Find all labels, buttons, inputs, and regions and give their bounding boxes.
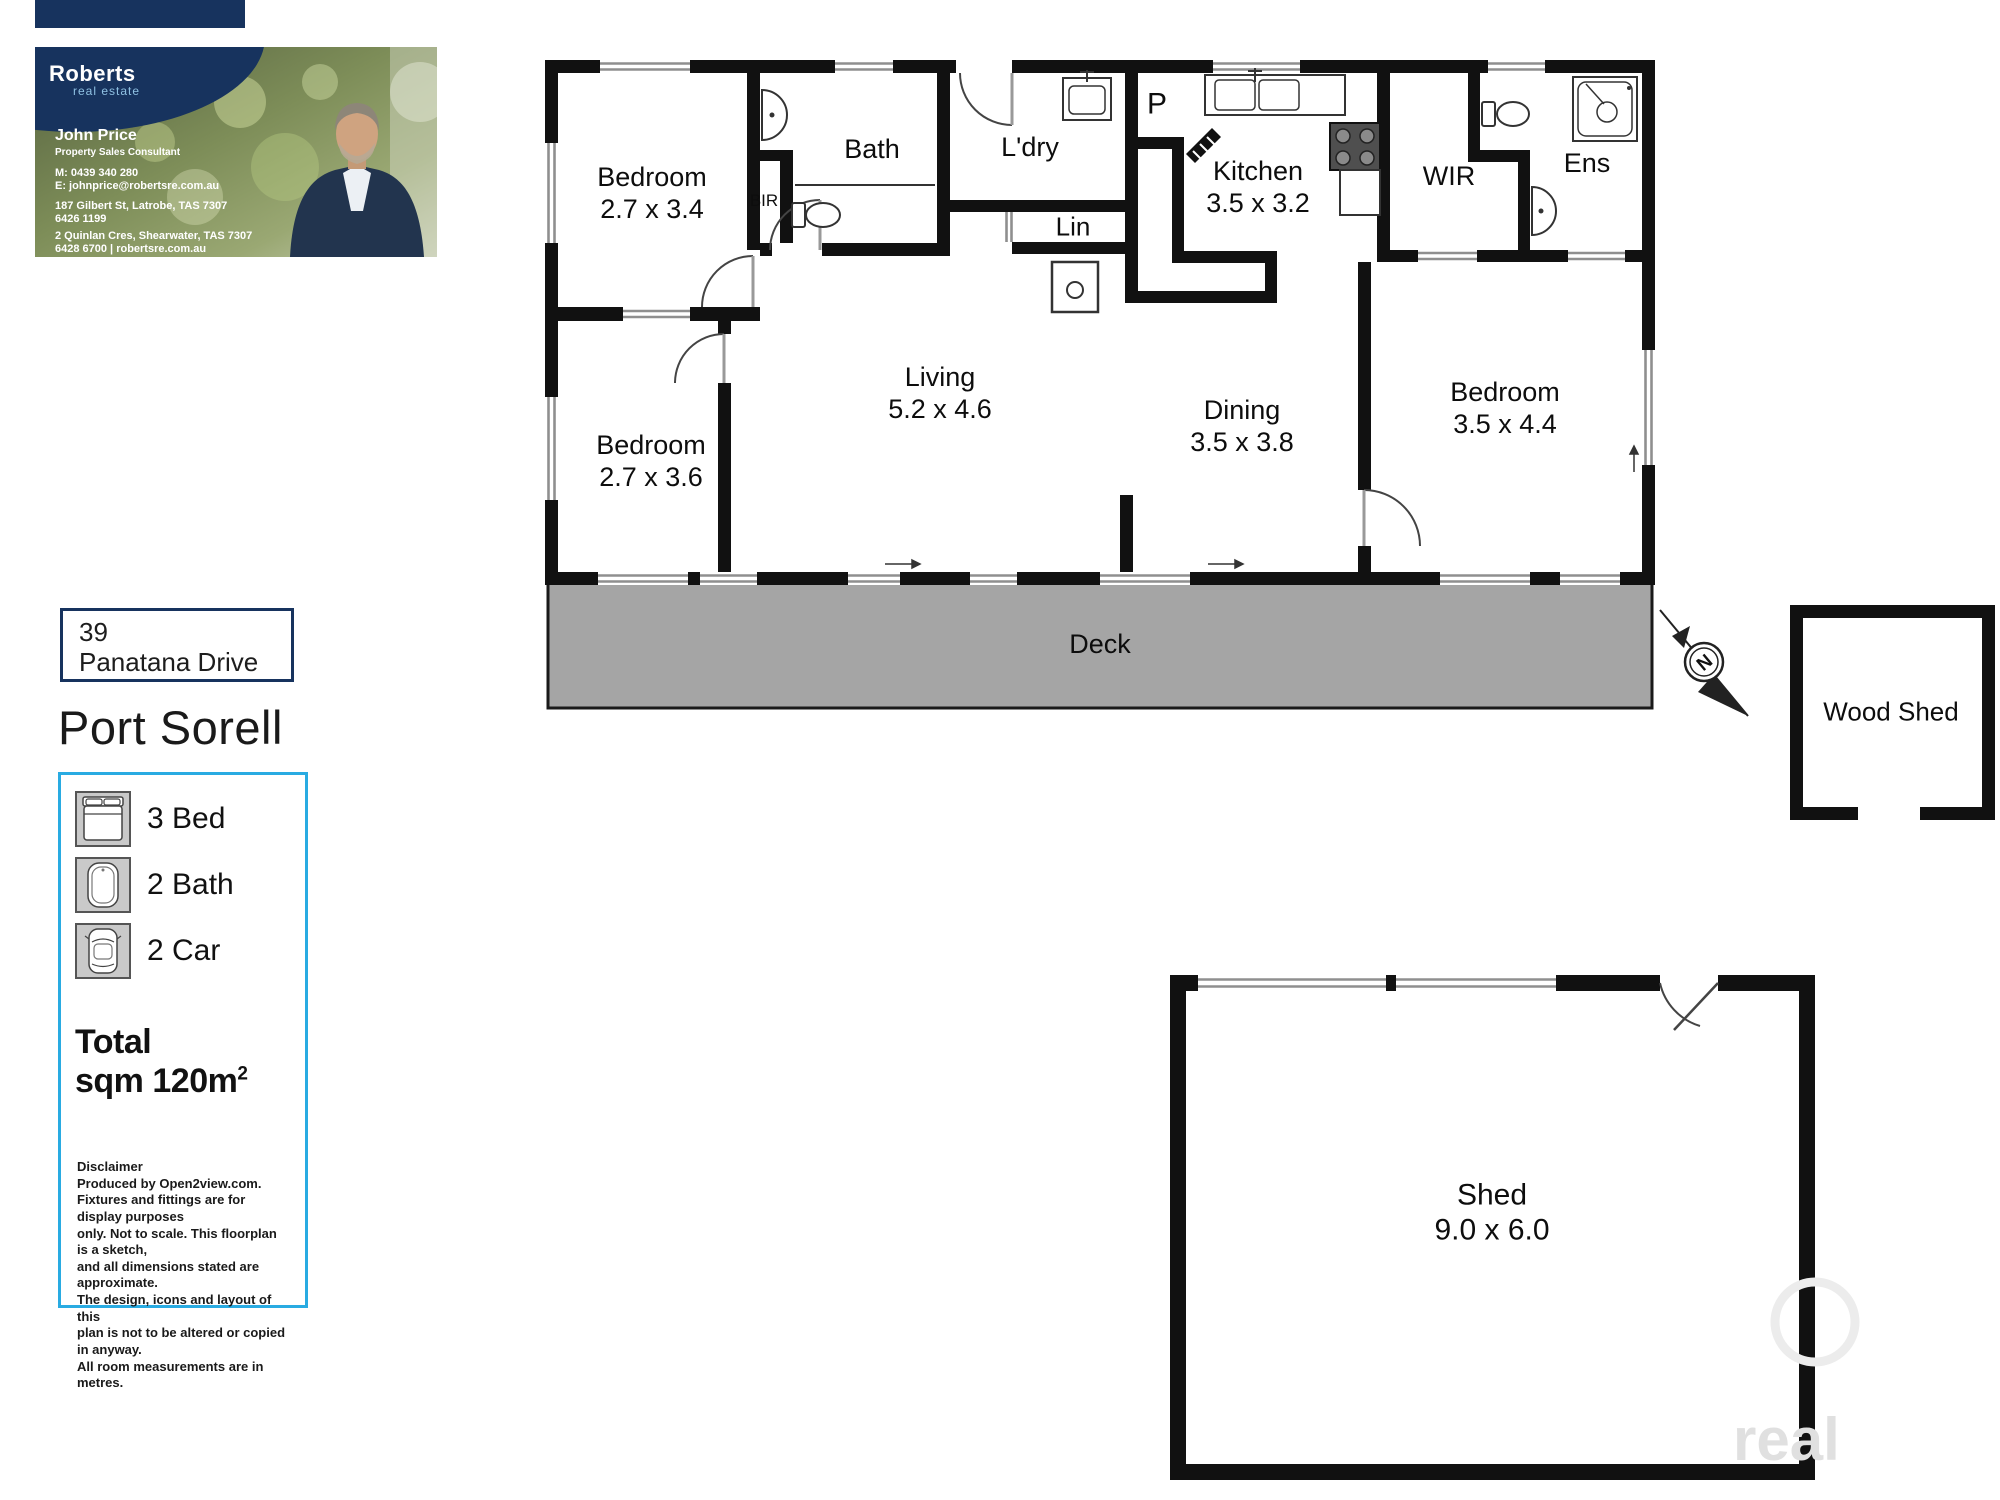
watermark-text: real (1733, 1406, 1840, 1473)
room-label-bedroom1: Bedroom2.7 x 3.4 (597, 162, 707, 226)
windows (545, 60, 1655, 991)
room-label-bir: BIR (750, 191, 778, 211)
room-label-deck: Deck (1069, 629, 1131, 661)
ens-shower-icon (1573, 77, 1637, 141)
floorplan-page: Roberts real estate John Price Property … (0, 0, 2000, 1500)
floor-plan: N real (0, 0, 2000, 1500)
walls (545, 60, 1995, 1480)
annotation-arrows (885, 446, 1638, 568)
room-label-woodshed: Wood Shed (1823, 697, 1958, 728)
room-label-laundry: L'dry (1001, 132, 1059, 164)
room-label-bedroom3: Bedroom3.5 x 4.4 (1450, 377, 1560, 441)
ens-toilet-icon (1482, 102, 1495, 126)
room-label-ensuite: Ens (1564, 148, 1611, 180)
bath-toilet-icon (792, 203, 805, 227)
room-label-living: Living5.2 x 4.6 (888, 362, 992, 426)
watermark: real (1733, 1282, 1855, 1473)
room-label-pantry: P (1147, 86, 1167, 121)
kitchen-counter (1205, 75, 1345, 115)
room-label-dining: Dining3.5 x 3.8 (1190, 395, 1294, 459)
room-label-wir: WIR (1423, 161, 1475, 193)
wood-heater-icon (1052, 262, 1098, 312)
room-label-kitchen: Kitchen3.5 x 3.2 (1206, 156, 1310, 220)
room-label-bedroom2: Bedroom2.7 x 3.6 (596, 430, 706, 494)
ens-basin-icon (1532, 187, 1556, 235)
fixtures (762, 68, 1637, 312)
compass-icon: N (1660, 610, 1748, 716)
room-label-bath: Bath (844, 134, 900, 166)
room-label-linen: Lin (1056, 212, 1091, 243)
room-label-shed: Shed9.0 x 6.0 (1434, 1178, 1549, 1249)
